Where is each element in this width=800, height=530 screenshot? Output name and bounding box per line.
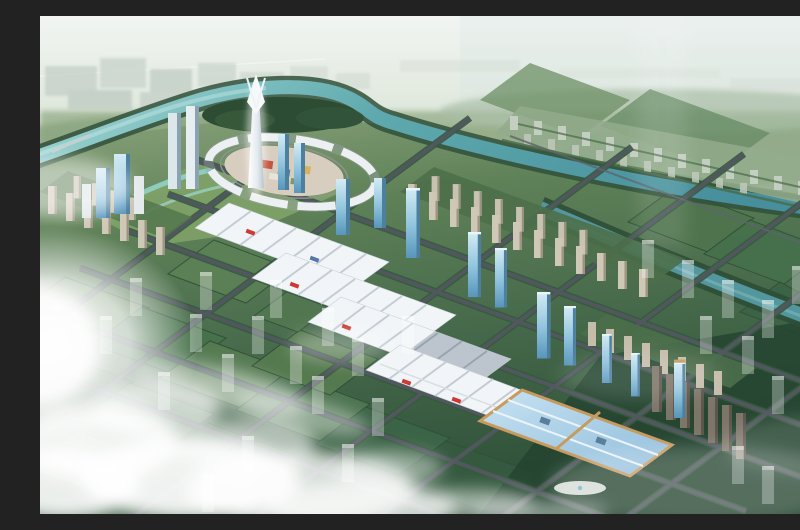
aerial-render-canvas bbox=[40, 16, 800, 514]
masterplan-aerial-image bbox=[40, 16, 800, 514]
light-shaft bbox=[638, 16, 686, 246]
